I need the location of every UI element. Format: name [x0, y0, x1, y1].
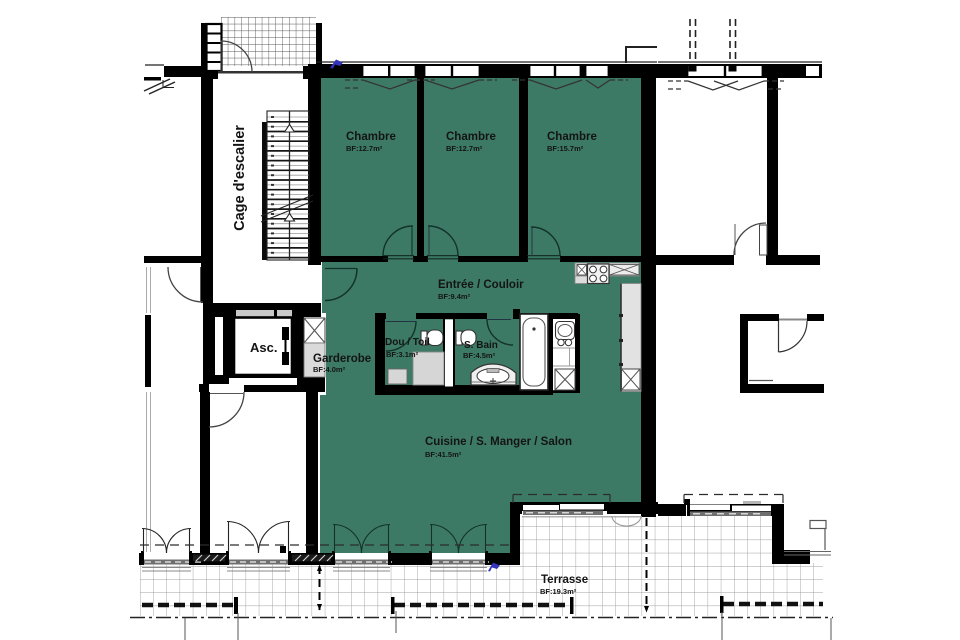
svg-text:Dou / Toil: Dou / Toil [385, 337, 430, 348]
svg-text:BF:4.0m²: BF:4.0m² [313, 365, 346, 374]
svg-text:Chambre: Chambre [547, 131, 597, 143]
svg-text:BF:9.4m²: BF:9.4m² [438, 292, 471, 301]
svg-text:S. Bain: S. Bain [464, 340, 498, 351]
svg-text:Chambre: Chambre [346, 131, 396, 143]
svg-text:BF:4.5m²: BF:4.5m² [463, 351, 496, 360]
svg-text:BF:12.7m²: BF:12.7m² [446, 144, 483, 153]
svg-text:Terrasse: Terrasse [541, 574, 588, 586]
svg-text:Cuisine / S. Manger / Salon: Cuisine / S. Manger / Salon [425, 436, 572, 448]
svg-text:BF:41.5m²: BF:41.5m² [425, 450, 462, 459]
svg-text:Asc.: Asc. [250, 340, 277, 355]
svg-text:Chambre: Chambre [446, 131, 496, 143]
svg-text:Entrée / Couloir: Entrée / Couloir [438, 279, 524, 291]
svg-text:Garderobe: Garderobe [313, 353, 371, 365]
svg-text:BF:19.3m²: BF:19.3m² [540, 587, 577, 596]
svg-text:BF:15.7m²: BF:15.7m² [547, 144, 584, 153]
svg-text:BF:3.1m²: BF:3.1m² [386, 350, 419, 359]
svg-text:BF:12.7m²: BF:12.7m² [346, 144, 383, 153]
svg-text:Cage d'escalier: Cage d'escalier [232, 125, 248, 231]
